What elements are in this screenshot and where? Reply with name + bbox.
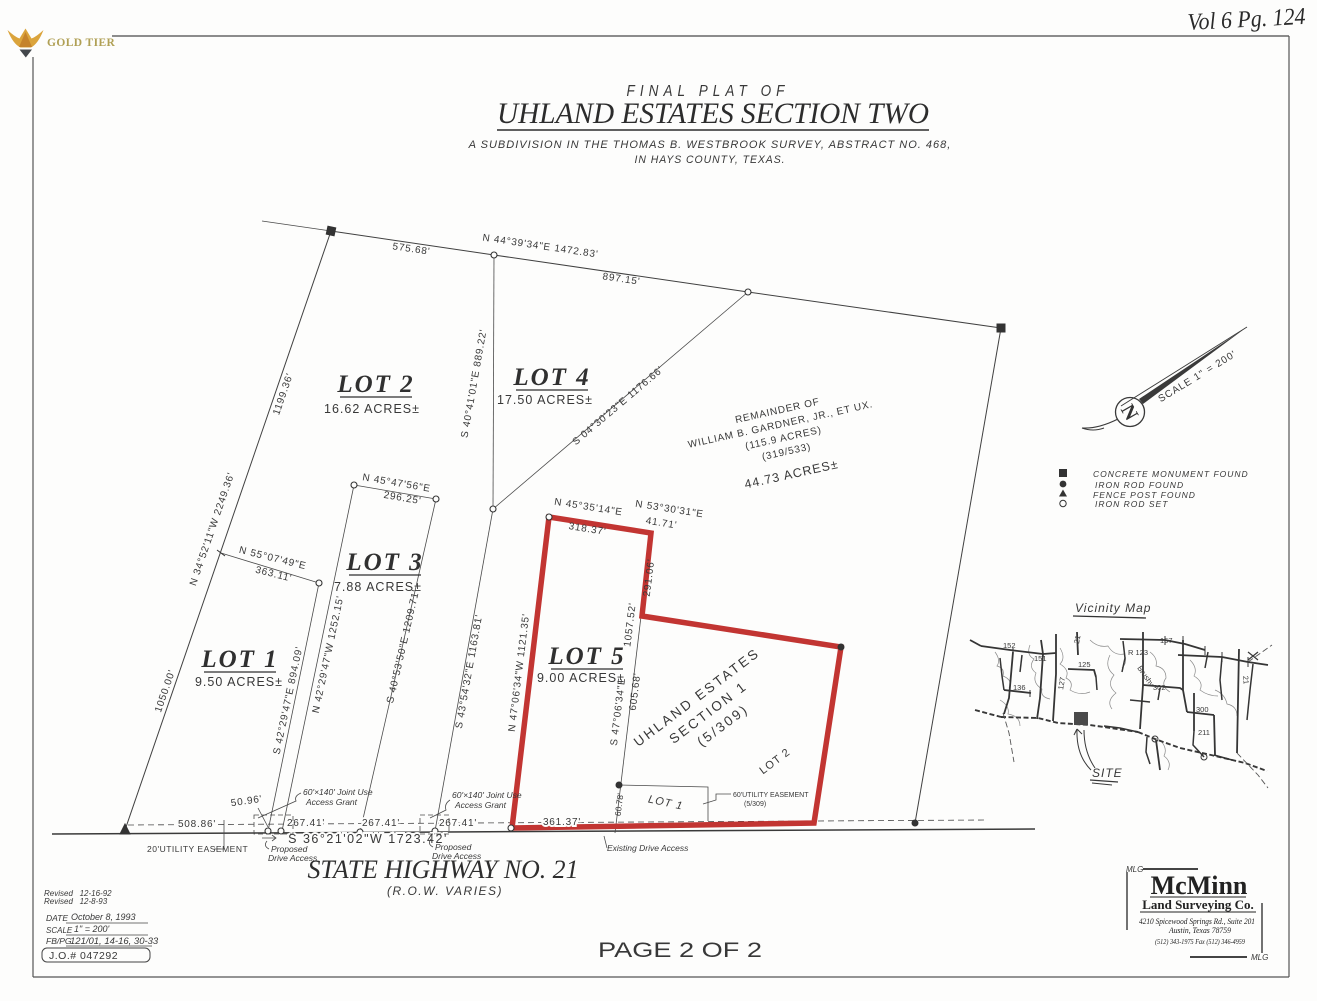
svg-text:1" = 200': 1" = 200' bbox=[74, 924, 109, 934]
svg-text:PAGE 2 OF 2: PAGE 2 OF 2 bbox=[598, 939, 762, 962]
svg-text:16.62 ACRES±: 16.62 ACRES± bbox=[324, 402, 420, 416]
svg-text:FB/PG: FB/PG bbox=[46, 936, 72, 946]
svg-text:361.37': 361.37' bbox=[543, 817, 581, 828]
svg-text:157: 157 bbox=[1160, 636, 1173, 645]
svg-text:(5/309): (5/309) bbox=[744, 801, 766, 808]
svg-text:R 123: R 123 bbox=[1128, 648, 1148, 657]
svg-text:DATE: DATE bbox=[46, 913, 68, 923]
svg-text:IRON ROD FOUND: IRON ROD FOUND bbox=[1095, 480, 1184, 490]
svg-text:(512) 343-1975 Fax (512) 346-: (512) 343-1975 Fax (512) 346-4959 bbox=[1155, 938, 1245, 946]
svg-text:9.50 ACRES±: 9.50 ACRES± bbox=[195, 675, 283, 689]
svg-text:Access Grant: Access Grant bbox=[305, 797, 358, 807]
svg-text:IN HAYS COUNTY, TEXAS.: IN HAYS COUNTY, TEXAS. bbox=[635, 154, 786, 166]
svg-text:LOT 4: LOT 4 bbox=[512, 364, 590, 391]
svg-text:Existing Drive Access: Existing Drive Access bbox=[607, 843, 689, 853]
svg-text:LOT 2: LOT 2 bbox=[336, 371, 414, 398]
svg-text:508.86': 508.86' bbox=[178, 819, 216, 830]
svg-text:121/01, 14-16, 30-33: 121/01, 14-16, 30-33 bbox=[70, 936, 159, 947]
svg-text:A SUBDIVISION IN THE THOMAS B.: A SUBDIVISION IN THE THOMAS B. WESTBROOK… bbox=[468, 139, 952, 151]
svg-text:267.41': 267.41' bbox=[439, 818, 477, 829]
svg-text:7.88 ACRES±: 7.88 ACRES± bbox=[334, 580, 422, 594]
svg-text:Access Grant: Access Grant bbox=[454, 800, 507, 810]
svg-text:17.50 ACRES±: 17.50 ACRES± bbox=[497, 393, 593, 407]
svg-text:LOT 1: LOT 1 bbox=[200, 646, 278, 673]
svg-text:Land Surveying Co.: Land Surveying Co. bbox=[1142, 897, 1254, 912]
svg-text:MLG: MLG bbox=[1126, 865, 1143, 874]
svg-text:MLG: MLG bbox=[1251, 953, 1268, 962]
svg-text:J.O.# 047292: J.O.# 047292 bbox=[49, 950, 118, 962]
svg-text:21: 21 bbox=[1072, 635, 1082, 645]
svg-text:267.41': 267.41' bbox=[362, 818, 400, 829]
svg-text:125: 125 bbox=[1078, 660, 1091, 669]
svg-text:LOT 5: LOT 5 bbox=[547, 643, 625, 670]
svg-text:302: 302 bbox=[1153, 683, 1166, 692]
svg-text:STATE HIGHWAY NO. 21: STATE HIGHWAY NO. 21 bbox=[308, 855, 579, 884]
svg-text:McMinn: McMinn bbox=[1151, 871, 1248, 900]
svg-text:(R.O.W. VARIES): (R.O.W. VARIES) bbox=[387, 884, 503, 898]
svg-text:136: 136 bbox=[1013, 683, 1026, 692]
svg-text:Vicinity Map: Vicinity Map bbox=[1075, 601, 1151, 615]
svg-text:151: 151 bbox=[1034, 654, 1047, 663]
svg-text:60'×140' Joint Use: 60'×140' Joint Use bbox=[452, 790, 522, 800]
svg-text:SCALE: SCALE bbox=[46, 926, 73, 935]
svg-text:20'UTILITY EASEMENT: 20'UTILITY EASEMENT bbox=[147, 844, 248, 854]
svg-text:211: 211 bbox=[1198, 728, 1210, 737]
svg-text:IRON ROD SET: IRON ROD SET bbox=[1095, 499, 1168, 509]
svg-text:October 8, 1993: October 8, 1993 bbox=[71, 912, 136, 922]
svg-text:UHLAND ESTATES SECTION TWO: UHLAND ESTATES SECTION TWO bbox=[497, 97, 929, 130]
svg-text:Revised 12-8-93: Revised 12-8-93 bbox=[44, 897, 108, 906]
svg-text:Austin, Texas 78759: Austin, Texas 78759 bbox=[1168, 925, 1232, 935]
svg-text:SITE: SITE bbox=[1092, 766, 1123, 780]
svg-text:9.00 ACRES±: 9.00 ACRES± bbox=[537, 671, 625, 685]
svg-text:60'×140' Joint Use: 60'×140' Joint Use bbox=[303, 787, 373, 797]
svg-text:CONCRETE MONUMENT FOUND: CONCRETE MONUMENT FOUND bbox=[1093, 469, 1249, 479]
svg-text:21: 21 bbox=[1241, 675, 1251, 684]
svg-text:GOLD TIER: GOLD TIER bbox=[47, 37, 116, 49]
svg-text:300: 300 bbox=[1196, 705, 1209, 714]
svg-text:LOT 3: LOT 3 bbox=[345, 549, 423, 576]
svg-text:60'UTILITY EASEMENT: 60'UTILITY EASEMENT bbox=[733, 792, 809, 799]
svg-text:152: 152 bbox=[1003, 641, 1016, 650]
